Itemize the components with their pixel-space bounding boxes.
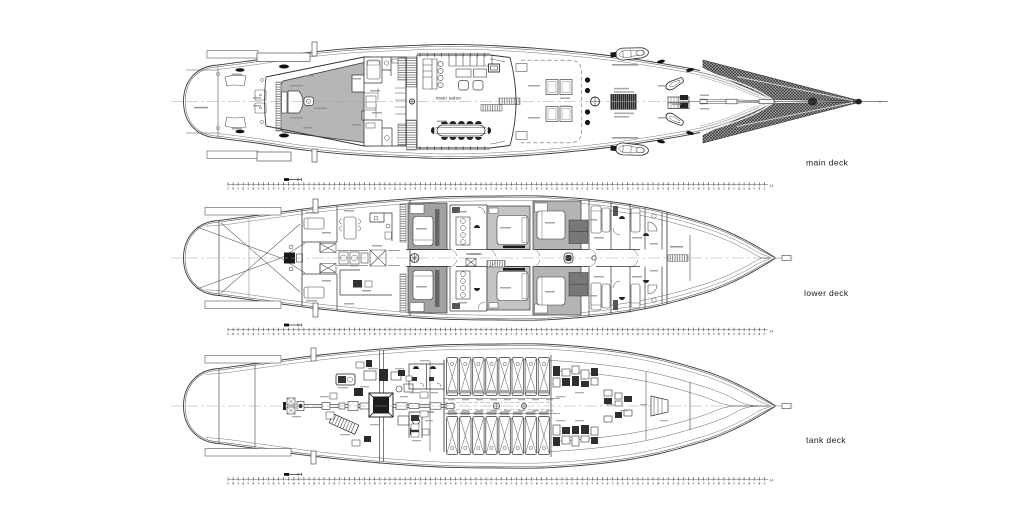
svg-text:14: 14 (769, 183, 774, 188)
svg-text:14: 14 (769, 478, 774, 483)
svg-text:lower deck: lower deck (804, 288, 849, 298)
svg-text:14: 14 (769, 328, 774, 333)
svg-text:tank deck: tank deck (806, 435, 846, 445)
svg-text:main salon: main salon (436, 96, 461, 101)
svg-text:main deck: main deck (806, 158, 849, 168)
